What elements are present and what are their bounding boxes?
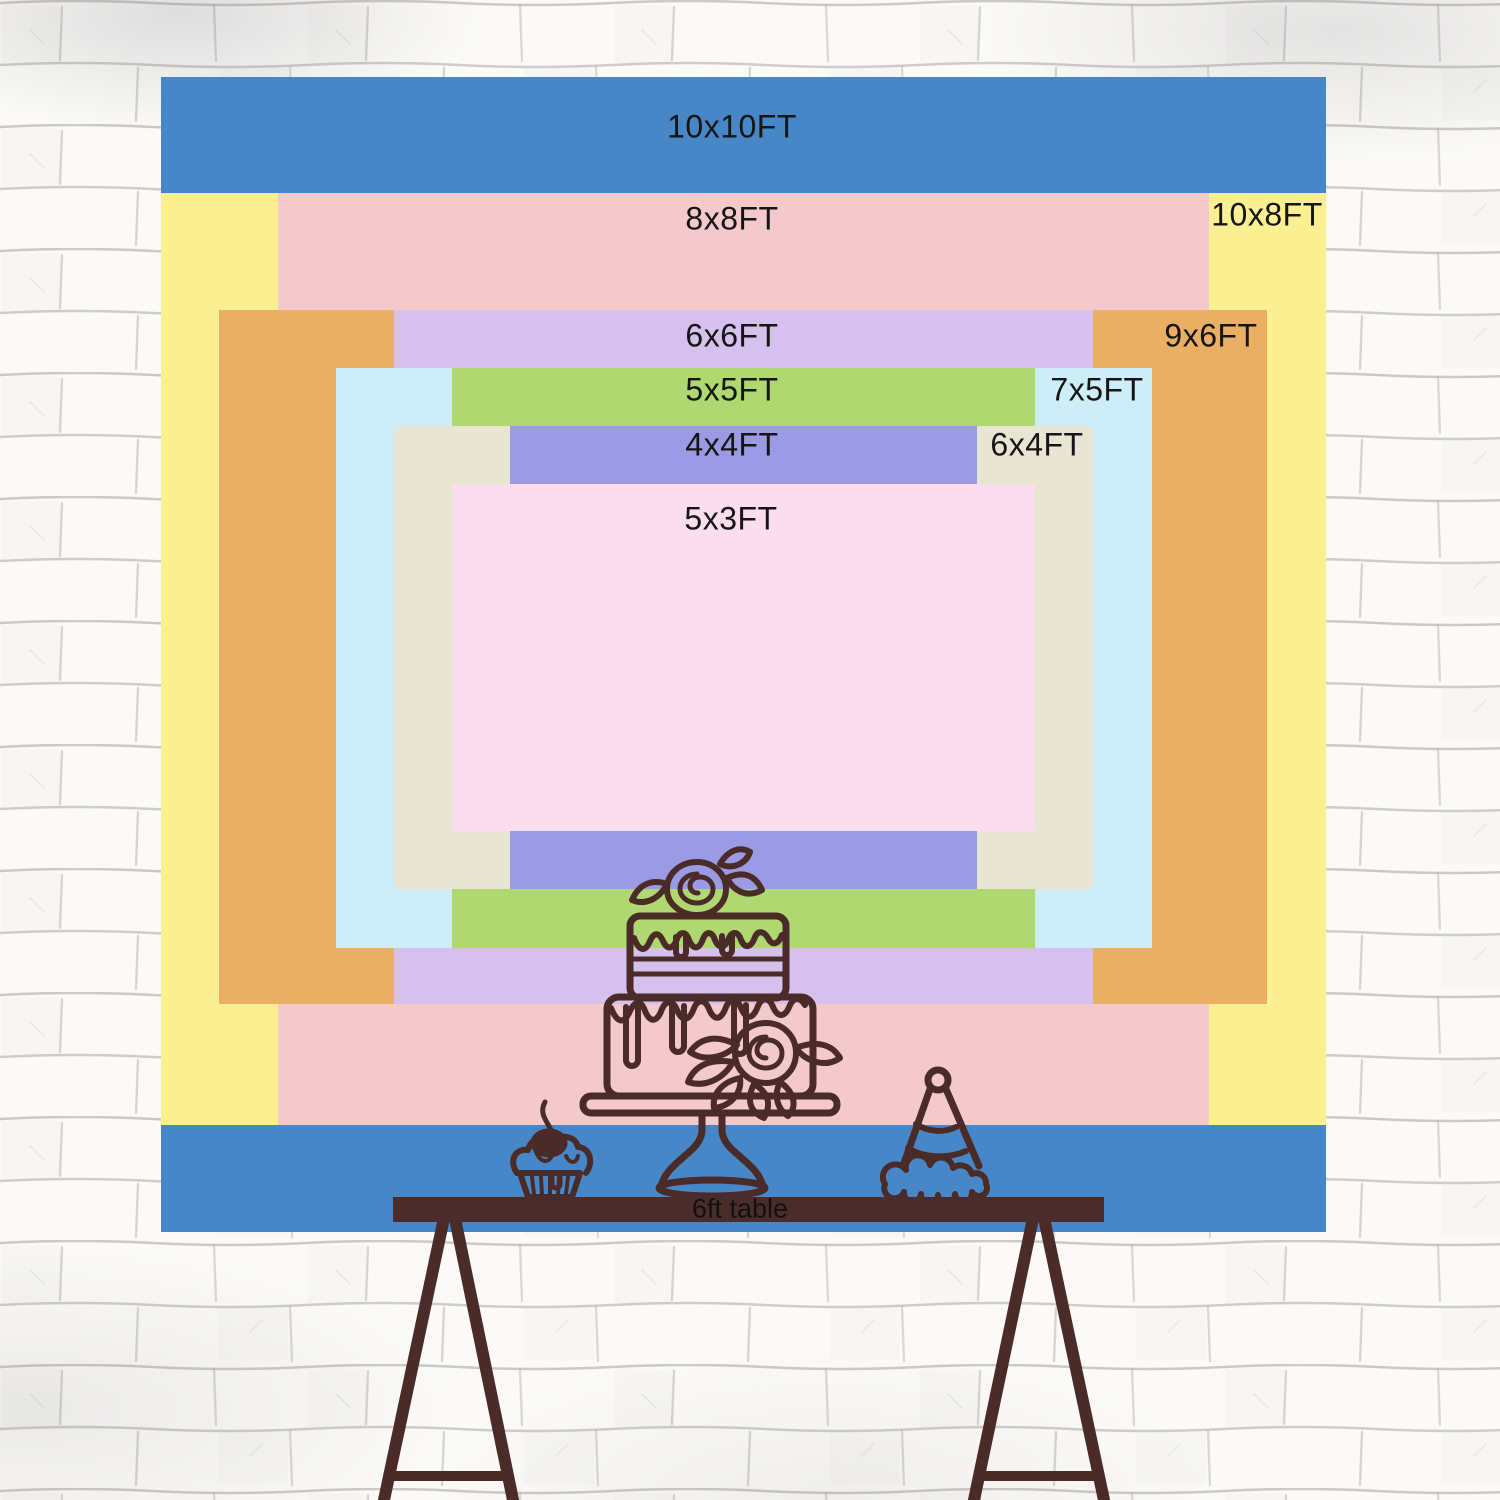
table-size-label: 6ft table: [692, 1194, 788, 1225]
cupcake-drawing: [513, 1102, 590, 1197]
tiered-cake-drawing: [583, 849, 840, 1196]
decor-drawings: [0, 0, 1500, 1500]
backdrop-size-chart: 6ft table 10x10FT 8x8FT 10x8FT 6x6FT 9x6…: [0, 0, 1500, 1500]
table-legs-drawing: [384, 1204, 1104, 1500]
party-hat-drawing: [883, 1070, 987, 1203]
